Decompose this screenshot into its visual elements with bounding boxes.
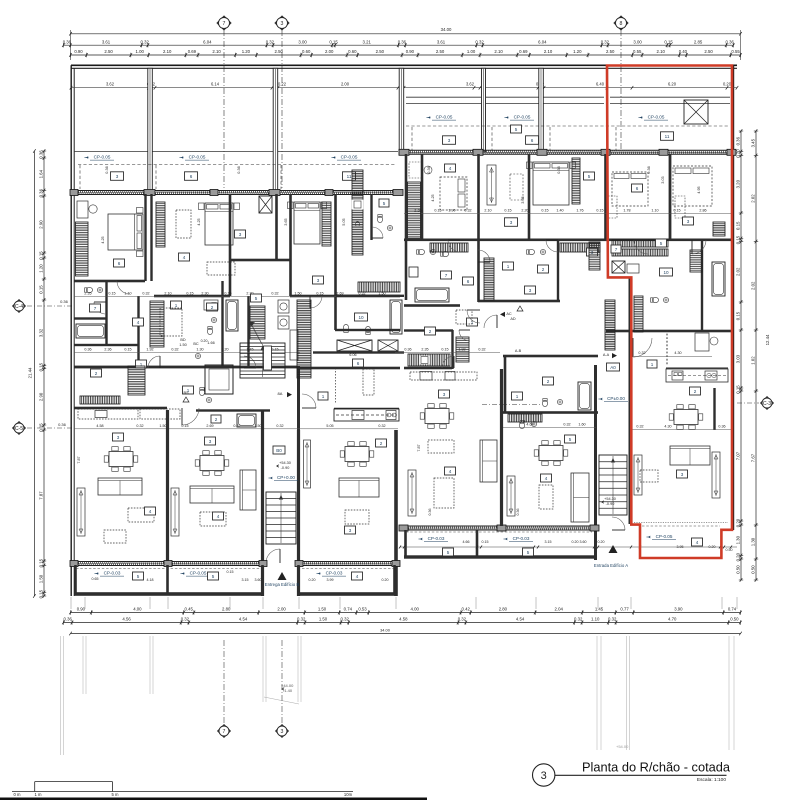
svg-text:0.32: 0.32 (181, 617, 190, 622)
svg-text:5: 5 (588, 174, 591, 179)
svg-text:0.15: 0.15 (108, 292, 115, 296)
svg-text:2.50: 2.50 (376, 49, 385, 54)
svg-text:0.32: 0.32 (271, 292, 278, 296)
svg-text:4: 4 (183, 255, 186, 260)
svg-text:0.90: 0.90 (74, 49, 83, 54)
svg-text:0.20: 0.20 (309, 578, 316, 582)
svg-text:4: 4 (356, 574, 359, 579)
svg-text:1.50: 1.50 (318, 607, 327, 612)
svg-text:0.22: 0.22 (278, 82, 287, 87)
svg-text:2: 2 (211, 305, 214, 310)
svg-text:4: 4 (149, 509, 152, 514)
svg-text:CP-0.03: CP-0.03 (104, 571, 121, 576)
svg-text:3.65: 3.65 (521, 196, 525, 203)
svg-text:+54.00: +54.00 (616, 744, 629, 749)
svg-text:1.30: 1.30 (735, 535, 740, 544)
svg-text:0.15: 0.15 (271, 348, 278, 352)
svg-text:0.36: 0.36 (105, 166, 109, 173)
svg-text:4.95: 4.95 (697, 186, 701, 193)
svg-text:3.03: 3.03 (735, 354, 740, 363)
svg-text:5: 5 (515, 127, 518, 132)
svg-text:0.20: 0.20 (723, 82, 732, 87)
svg-text:8A: 8A (278, 391, 283, 396)
svg-text:5: 5 (527, 550, 530, 555)
svg-text:0.32: 0.32 (341, 617, 350, 622)
svg-text:1: 1 (175, 303, 178, 308)
svg-text:0.36: 0.36 (237, 166, 241, 173)
svg-text:0.15: 0.15 (186, 292, 193, 296)
svg-text:3.65: 3.65 (284, 218, 288, 225)
svg-text:0.60: 0.60 (302, 49, 311, 54)
svg-text:0.20: 0.20 (382, 578, 389, 582)
svg-text:0.32: 0.32 (478, 348, 485, 352)
svg-text:0.36: 0.36 (63, 39, 72, 44)
svg-text:3.45: 3.45 (750, 138, 755, 147)
svg-text:11: 11 (347, 174, 352, 179)
svg-text:1 m: 1 m (35, 792, 42, 797)
svg-text:A-B: A-B (515, 349, 522, 353)
svg-text:3.03: 3.03 (661, 176, 665, 183)
svg-text:7: 7 (223, 21, 226, 27)
svg-text:1.10: 1.10 (591, 617, 600, 622)
svg-text:1.45: 1.45 (246, 348, 253, 352)
svg-text:0.15: 0.15 (38, 362, 43, 371)
svg-text:Entrada Edifício A: Entrada Edifício A (594, 563, 628, 568)
svg-text:3.99: 3.99 (327, 578, 334, 582)
svg-text:C-4: C-4 (15, 304, 23, 310)
svg-text:5: 5 (255, 296, 258, 301)
svg-text:2.30: 2.30 (201, 292, 208, 296)
svg-text:5: 5 (137, 574, 140, 579)
svg-text:2: 2 (694, 389, 697, 394)
svg-text:0.36: 0.36 (84, 348, 91, 352)
svg-text:3.60: 3.60 (580, 540, 587, 544)
svg-text:0.15: 0.15 (735, 311, 740, 320)
svg-text:0.36: 0.36 (64, 617, 73, 622)
svg-text:0.32: 0.32 (464, 209, 471, 213)
svg-text:CP-0.05: CP-0.05 (656, 534, 673, 539)
svg-text:2.86: 2.86 (699, 209, 706, 213)
svg-text:2.35: 2.35 (421, 348, 428, 352)
svg-text:0.15: 0.15 (541, 209, 548, 213)
svg-text:2.04: 2.04 (555, 607, 564, 612)
svg-text:0.36: 0.36 (428, 509, 432, 516)
svg-text:5 m: 5 m (112, 792, 119, 797)
svg-text:0 m: 0 m (14, 792, 21, 797)
svg-text:6.06: 6.06 (349, 353, 356, 357)
svg-text:4: 4 (137, 320, 140, 325)
svg-text:3: 3 (239, 232, 242, 237)
svg-text:3: 3 (541, 770, 547, 782)
svg-text:2.00: 2.00 (277, 607, 286, 612)
svg-text:0.90: 0.90 (77, 607, 86, 612)
svg-text:0.32: 0.32 (475, 39, 484, 44)
svg-text:3: 3 (510, 220, 513, 225)
svg-text:0.15: 0.15 (482, 540, 489, 544)
svg-text:3: 3 (687, 219, 690, 224)
svg-text:7.07: 7.07 (735, 451, 740, 460)
svg-text:0.15: 0.15 (441, 348, 448, 352)
svg-text:1: 1 (651, 362, 654, 367)
svg-text:5: 5 (660, 241, 663, 246)
svg-text:2.10: 2.10 (212, 49, 221, 54)
svg-text:0.15: 0.15 (224, 292, 231, 296)
svg-text:4.25: 4.25 (431, 194, 435, 201)
svg-text:4: 4 (449, 166, 452, 171)
svg-text:1.50: 1.50 (159, 424, 166, 428)
svg-text:7: 7 (223, 729, 226, 735)
svg-text:6: 6 (467, 279, 470, 284)
svg-text:3: 3 (681, 472, 684, 477)
svg-text:A-A: A-A (603, 353, 610, 357)
svg-text:4.25: 4.25 (101, 236, 105, 243)
svg-text:0.32: 0.32 (233, 424, 240, 428)
svg-text:7.67: 7.67 (750, 453, 755, 462)
svg-text:2.50: 2.50 (104, 49, 113, 54)
svg-text:0.20: 0.20 (735, 552, 740, 561)
svg-text:0.45: 0.45 (185, 607, 194, 612)
svg-text:+54.30: +54.30 (604, 497, 616, 501)
svg-text:3: 3 (317, 278, 320, 283)
svg-text:1.50: 1.50 (38, 574, 43, 583)
svg-text:2: 2 (547, 379, 550, 384)
svg-text:0.77: 0.77 (620, 607, 629, 612)
svg-text:CP-0.05: CP-0.05 (190, 571, 207, 576)
svg-text:B0: B0 (276, 448, 282, 453)
svg-text:0.40: 0.40 (679, 49, 688, 54)
svg-text:0.15: 0.15 (434, 209, 441, 213)
svg-text:2.20: 2.20 (521, 209, 528, 213)
svg-text:0.50: 0.50 (750, 565, 755, 574)
svg-text:0.15: 0.15 (329, 39, 338, 44)
svg-text:2.10: 2.10 (163, 49, 172, 54)
svg-text:0.36: 0.36 (398, 39, 407, 44)
svg-text:0.50: 0.50 (735, 565, 740, 574)
svg-text:0.15: 0.15 (316, 292, 323, 296)
svg-text:1: 1 (322, 394, 325, 399)
svg-text:0.32: 0.32 (378, 424, 385, 428)
svg-text:5: 5 (212, 574, 215, 579)
svg-text:1: 1 (516, 394, 519, 399)
svg-text:0.65: 0.65 (92, 577, 99, 581)
svg-text:4.00: 4.00 (133, 607, 142, 612)
svg-text:0.15: 0.15 (38, 251, 43, 260)
svg-text:0.90: 0.90 (406, 49, 415, 54)
svg-text:4.25: 4.25 (197, 218, 201, 225)
svg-text:3: 3 (448, 138, 451, 143)
svg-text:0.32: 0.32 (574, 617, 583, 622)
svg-text:0.69: 0.69 (188, 49, 197, 54)
svg-text:-0.90: -0.90 (606, 502, 615, 506)
svg-text:1: 1 (507, 264, 510, 269)
svg-text:7.87: 7.87 (417, 444, 421, 451)
svg-text:0.36: 0.36 (38, 150, 43, 159)
svg-text:2.90: 2.90 (38, 392, 43, 401)
svg-text:0.15: 0.15 (596, 209, 603, 213)
svg-text:10: 10 (358, 315, 364, 320)
svg-text:0.36: 0.36 (557, 166, 561, 173)
svg-text:1.50: 1.50 (179, 343, 186, 347)
svg-text:6: 6 (357, 361, 360, 366)
svg-text:3: 3 (281, 21, 284, 27)
svg-text:3: 3 (116, 174, 119, 179)
svg-text:3.61: 3.61 (437, 39, 446, 44)
svg-text:0.20: 0.20 (709, 545, 716, 549)
svg-text:1.50: 1.50 (294, 292, 301, 296)
svg-text:2: 2 (542, 267, 545, 272)
svg-text:B5: B5 (184, 390, 190, 395)
svg-text:2.80: 2.80 (499, 607, 508, 612)
svg-text:A0: A0 (610, 365, 616, 370)
svg-text:3: 3 (281, 729, 284, 735)
svg-text:3.95: 3.95 (677, 545, 684, 549)
svg-text:0.15: 0.15 (181, 424, 188, 428)
svg-text:0.74: 0.74 (728, 607, 737, 612)
svg-text:21.44: 21.44 (28, 367, 33, 378)
svg-text:CP-0.05: CP-0.05 (514, 115, 531, 120)
svg-text:7.87: 7.87 (77, 456, 81, 463)
svg-text:5.05: 5.05 (342, 218, 346, 225)
svg-text:Entrega Edifício B: Entrega Edifício B (265, 582, 300, 587)
svg-text:0.32: 0.32 (141, 39, 150, 44)
svg-text:3.00: 3.00 (298, 39, 307, 44)
svg-text:4.58: 4.58 (399, 617, 408, 622)
svg-text:1.20: 1.20 (38, 264, 43, 273)
svg-text:+54.30: +54.30 (279, 461, 291, 465)
svg-text:4: 4 (545, 476, 548, 481)
svg-text:3.00: 3.00 (633, 39, 642, 44)
svg-text:0.36: 0.36 (718, 425, 725, 429)
svg-text:4.00: 4.00 (411, 607, 420, 612)
svg-text:0.15: 0.15 (735, 221, 740, 230)
svg-text:4: 4 (217, 514, 220, 519)
svg-text:4: 4 (696, 540, 699, 545)
svg-text:3: 3 (117, 435, 120, 440)
svg-text:0.36: 0.36 (735, 136, 740, 145)
svg-text:1.78: 1.78 (623, 209, 630, 213)
svg-text:3.60: 3.60 (255, 578, 262, 582)
svg-text:0.36: 0.36 (38, 188, 43, 197)
svg-text:1.20: 1.20 (573, 49, 582, 54)
svg-text:0.50: 0.50 (726, 548, 733, 552)
svg-text:7: 7 (615, 247, 618, 252)
svg-text:3: 3 (529, 288, 532, 293)
svg-text:3.20: 3.20 (735, 179, 740, 188)
svg-text:BC: BC (193, 342, 199, 346)
svg-text:0.36: 0.36 (726, 39, 735, 44)
svg-text:34.00: 34.00 (380, 628, 391, 633)
svg-text:0.15: 0.15 (124, 348, 131, 352)
svg-text:3: 3 (443, 392, 446, 397)
svg-text:3.15: 3.15 (545, 540, 552, 544)
svg-text:0.15: 0.15 (38, 558, 43, 567)
svg-text:2.10: 2.10 (494, 49, 503, 54)
svg-text:2.10: 2.10 (164, 292, 171, 296)
svg-text:4.70: 4.70 (668, 617, 677, 622)
svg-text:4.30: 4.30 (664, 425, 671, 429)
svg-text:0.32: 0.32 (608, 617, 617, 622)
svg-text:34.00: 34.00 (441, 27, 452, 32)
svg-text:2.00: 2.00 (325, 49, 334, 54)
svg-text:1.66: 1.66 (207, 341, 214, 345)
svg-text:4.56: 4.56 (122, 617, 131, 622)
svg-text:0.20: 0.20 (735, 518, 740, 527)
svg-text:5: 5 (383, 201, 386, 206)
svg-text:-1.40: -1.40 (283, 688, 293, 693)
svg-text:1.40: 1.40 (556, 209, 563, 213)
svg-text:2.10: 2.10 (544, 49, 553, 54)
svg-text:2: 2 (95, 371, 98, 376)
svg-text:5: 5 (447, 550, 450, 555)
svg-text:3.62: 3.62 (466, 82, 475, 87)
svg-text:2.80: 2.80 (222, 607, 231, 612)
svg-text:0.32: 0.32 (266, 39, 275, 44)
svg-text:4.58: 4.58 (96, 424, 103, 428)
svg-text:AC: AC (506, 312, 512, 316)
svg-text:1.92: 1.92 (458, 348, 465, 352)
svg-text:0.20: 0.20 (572, 540, 579, 544)
svg-text:0.36: 0.36 (647, 166, 651, 173)
svg-text:0.50: 0.50 (730, 617, 739, 622)
svg-text:4.54: 4.54 (516, 617, 525, 622)
svg-text:0.55: 0.55 (731, 49, 740, 54)
svg-text:6: 6 (190, 174, 193, 179)
svg-text:6: 6 (636, 186, 639, 191)
svg-text:1.92: 1.92 (146, 348, 153, 352)
svg-text:8: 8 (620, 21, 623, 27)
svg-text:4.64: 4.64 (526, 423, 533, 427)
svg-text:1.30: 1.30 (750, 537, 755, 546)
svg-text:2.10: 2.10 (484, 209, 491, 213)
svg-text:0.20: 0.20 (221, 348, 228, 352)
svg-text:0.60: 0.60 (348, 49, 357, 54)
svg-text:CP-0.03: CP-0.03 (513, 536, 530, 541)
svg-text:CP-0.03: CP-0.03 (326, 571, 343, 576)
svg-text:6.14: 6.14 (211, 82, 220, 87)
svg-text:0.15: 0.15 (735, 385, 740, 394)
svg-text:0.36: 0.36 (404, 348, 411, 352)
svg-text:11: 11 (665, 134, 670, 139)
svg-text:1.30: 1.30 (196, 348, 203, 352)
svg-text:2.00: 2.00 (341, 82, 350, 87)
svg-text:1.45: 1.45 (595, 607, 604, 612)
svg-text:3.21: 3.21 (363, 39, 372, 44)
svg-text:BD: BD (180, 338, 186, 342)
svg-text:4.18: 4.18 (147, 578, 154, 582)
svg-text:0.15: 0.15 (227, 570, 234, 574)
svg-text:2.50: 2.50 (606, 49, 615, 54)
svg-text:CP-0.05: CP-0.05 (648, 115, 665, 120)
svg-text:0.15: 0.15 (38, 423, 43, 432)
svg-text:1.90: 1.90 (448, 209, 455, 213)
svg-text:2.69: 2.69 (206, 424, 213, 428)
svg-text:0.55: 0.55 (633, 49, 642, 54)
svg-text:0.36: 0.36 (58, 422, 67, 427)
svg-text:6.04: 6.04 (538, 39, 547, 44)
svg-text:CP-0.05: CP-0.05 (94, 155, 111, 160)
svg-text:6.04: 6.04 (203, 39, 212, 44)
svg-text:CP-0.03: CP-0.03 (428, 536, 445, 541)
svg-text:0.32: 0.32 (638, 351, 645, 355)
svg-text:10m: 10m (344, 792, 353, 797)
svg-text:3.32: 3.32 (38, 328, 43, 337)
svg-text:10: 10 (663, 270, 669, 275)
svg-text:CP+0.00: CP+0.00 (277, 475, 295, 480)
svg-text:2: 2 (215, 417, 218, 422)
svg-text:CP-0.05: CP-0.05 (189, 155, 206, 160)
svg-text:2.36: 2.36 (104, 348, 111, 352)
svg-text:1.10: 1.10 (651, 209, 658, 213)
svg-text:CP±0.00: CP±0.00 (607, 396, 625, 401)
svg-text:0.32: 0.32 (297, 617, 306, 622)
svg-text:0.36: 0.36 (427, 166, 431, 173)
svg-text:1.00: 1.00 (467, 49, 476, 54)
svg-text:0.53: 0.53 (358, 607, 367, 612)
svg-text:0.32: 0.32 (142, 292, 149, 296)
svg-text:0.32: 0.32 (171, 348, 178, 352)
svg-text:0.42: 0.42 (462, 607, 471, 612)
svg-text:3.15: 3.15 (242, 578, 249, 582)
svg-text:2.02: 2.02 (735, 267, 740, 276)
svg-text:5: 5 (569, 437, 572, 442)
svg-text:7: 7 (445, 273, 448, 278)
svg-text:12.44: 12.44 (765, 334, 770, 345)
svg-text:0.15: 0.15 (735, 235, 740, 244)
svg-text:0.32: 0.32 (276, 424, 283, 428)
svg-text:6.40: 6.40 (596, 82, 605, 87)
svg-text:0.15: 0.15 (38, 285, 43, 294)
svg-text:Planta do R/chão - cotada: Planta do R/chão - cotada (582, 760, 731, 775)
svg-text:0.32: 0.32 (563, 423, 570, 427)
svg-text:0.32: 0.32 (458, 617, 467, 622)
svg-text:1.64: 1.64 (38, 169, 43, 178)
svg-text:2.90: 2.90 (38, 220, 43, 229)
svg-text:2: 2 (380, 441, 383, 446)
svg-text:4.66: 4.66 (463, 540, 470, 544)
svg-text:2.85: 2.85 (694, 39, 703, 44)
svg-text:3.90: 3.90 (674, 607, 683, 612)
svg-text:C-5: C-5 (15, 426, 23, 432)
svg-text:CP-0.05: CP-0.05 (341, 155, 358, 160)
svg-text:2.50: 2.50 (436, 49, 445, 54)
svg-text:0.32: 0.32 (636, 425, 643, 429)
svg-text:0.15: 0.15 (504, 209, 511, 213)
svg-text:1.02: 1.02 (750, 356, 755, 365)
svg-text:1.50: 1.50 (254, 424, 261, 428)
svg-text:Escala: 1:100: Escala: 1:100 (697, 777, 726, 783)
svg-text:1.50: 1.50 (319, 617, 328, 622)
svg-text:1.60: 1.60 (578, 423, 585, 427)
svg-text:6: 6 (118, 261, 121, 266)
svg-text:0.74: 0.74 (344, 607, 353, 612)
svg-text:2.50: 2.50 (704, 49, 713, 54)
svg-text:3.61: 3.61 (102, 39, 111, 44)
svg-text:2.02: 2.02 (750, 194, 755, 203)
svg-text:0.20: 0.20 (598, 540, 605, 544)
svg-text:0.15: 0.15 (673, 209, 680, 213)
svg-text:1.00: 1.00 (136, 49, 145, 54)
svg-text:0.15: 0.15 (664, 39, 673, 44)
svg-text:1.20: 1.20 (242, 49, 251, 54)
svg-text:4.30: 4.30 (674, 351, 681, 355)
svg-text:0.69: 0.69 (519, 49, 528, 54)
svg-text:7.87: 7.87 (38, 491, 43, 500)
svg-text:5.05: 5.05 (326, 424, 333, 428)
svg-text:-0.90: -0.90 (281, 466, 290, 470)
svg-text:2.10: 2.10 (657, 49, 666, 54)
svg-text:C-3: C-3 (763, 401, 771, 407)
svg-text:AD: AD (510, 317, 516, 321)
